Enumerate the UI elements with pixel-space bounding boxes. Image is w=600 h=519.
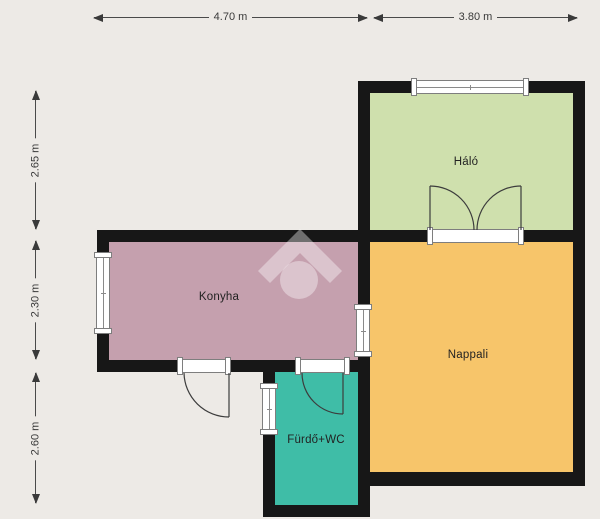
window-sill-tab <box>260 429 278 435</box>
arrow-right-icon <box>358 14 368 22</box>
room-label-konyha: Konyha <box>199 291 239 303</box>
threshold-tab <box>177 357 183 375</box>
threshold-bedroom-door <box>428 229 523 243</box>
arrow-left-icon <box>93 14 103 22</box>
wall-bathroom-bottom <box>263 505 370 517</box>
window-sill-tab <box>523 78 529 96</box>
entrance-door <box>184 373 229 417</box>
threshold-entrance-door <box>178 359 230 373</box>
window-center-tick <box>101 293 106 294</box>
window-center-tick <box>267 409 272 410</box>
window-kitchen-living <box>356 305 370 356</box>
arrow-up-icon <box>32 240 40 250</box>
window-sill-tab <box>354 304 372 310</box>
dimension-left-bathroom: 2.60 m <box>29 372 42 504</box>
window-sill-tab <box>354 351 372 357</box>
dimension-top-right: 3.80 m <box>373 11 578 24</box>
dimension-label: 4.70 m <box>209 11 253 24</box>
floorplan-page: { "title": "Apartment floor plan", "colo… <box>0 0 600 519</box>
room-label-halo: Háló <box>454 156 478 168</box>
floorplan-canvas: 4.70 m 3.80 m 2.65 m 2.30 m 2.60 m <box>0 0 600 519</box>
wall-living-bottom <box>358 472 585 486</box>
dimension-label: 2.65 m <box>29 138 42 182</box>
dimension-left-kitchen: 2.30 m <box>29 240 42 360</box>
window-bathroom-left <box>262 384 276 434</box>
wall-center-vertical <box>358 81 370 517</box>
dimension-left-bedroom: 2.65 m <box>29 90 42 230</box>
dimension-label: 2.30 m <box>29 278 42 322</box>
arrow-up-icon <box>32 90 40 100</box>
wall-right-exterior <box>573 81 585 486</box>
threshold-tab <box>225 357 231 375</box>
dimension-top-left: 4.70 m <box>93 11 368 24</box>
window-center-tick <box>361 331 366 332</box>
room-label-nappali: Nappali <box>448 349 488 361</box>
arrow-right-icon <box>568 14 578 22</box>
arrow-left-icon <box>373 14 383 22</box>
door-swing-arc <box>184 373 229 417</box>
window-sill-tab <box>94 252 112 258</box>
arrow-down-icon <box>32 350 40 360</box>
window-kitchen-left <box>96 253 110 333</box>
threshold-tab <box>344 357 350 375</box>
arrow-down-icon <box>32 494 40 504</box>
dimension-label: 3.80 m <box>454 11 498 24</box>
threshold-bathroom-door <box>296 359 349 373</box>
window-center-tick <box>470 85 471 90</box>
window-sill-tab <box>94 328 112 334</box>
room-label-furdo: Fürdő+WC <box>287 434 345 446</box>
arrow-down-icon <box>32 220 40 230</box>
threshold-tab <box>295 357 301 375</box>
dimension-label: 2.60 m <box>29 416 42 460</box>
threshold-tab <box>427 227 433 245</box>
window-sill-tab <box>411 78 417 96</box>
window-bedroom-top <box>412 80 528 94</box>
threshold-tab <box>518 227 524 245</box>
arrow-up-icon <box>32 372 40 382</box>
window-sill-tab <box>260 383 278 389</box>
